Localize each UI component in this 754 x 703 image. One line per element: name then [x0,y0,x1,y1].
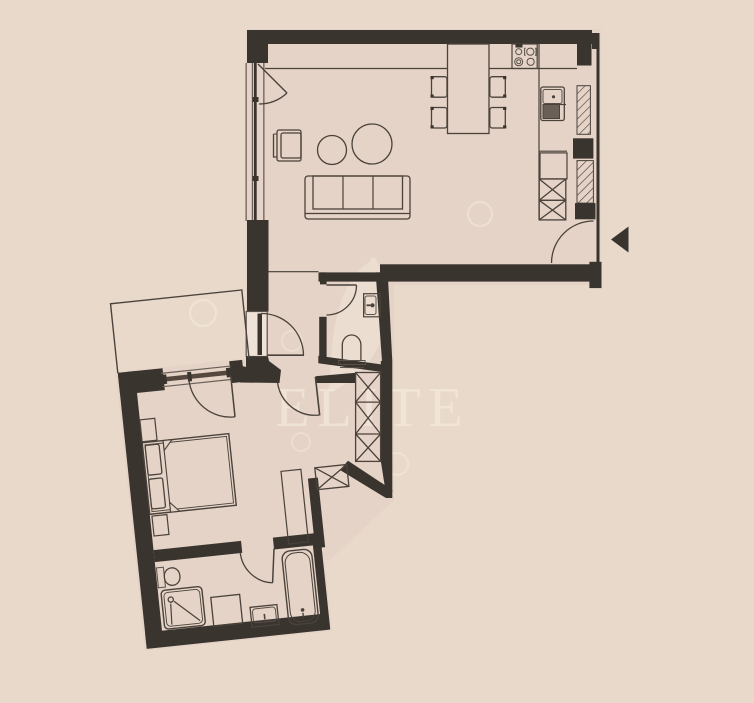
svg-text:ELITE: ELITE [275,377,470,439]
